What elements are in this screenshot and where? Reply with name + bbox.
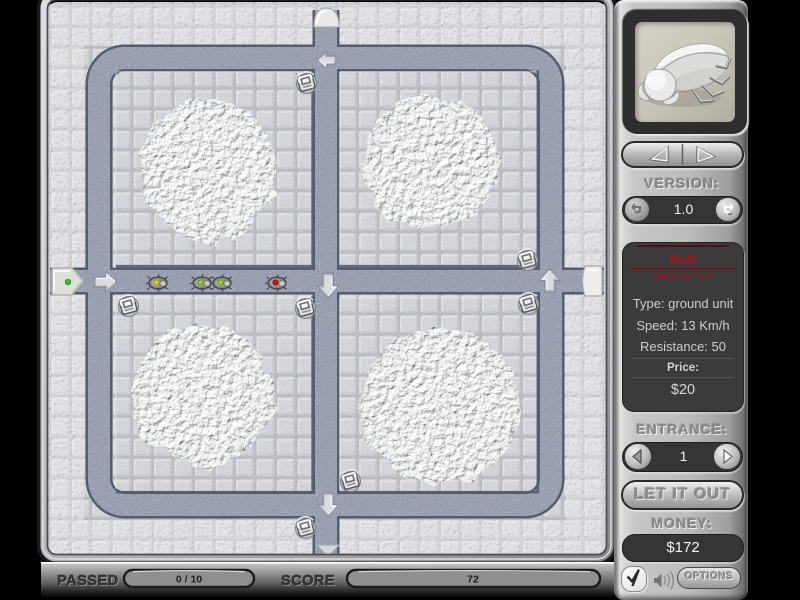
svg-text:0 / 10: 0 / 10	[176, 574, 202, 586]
svg-text:72: 72	[467, 574, 479, 586]
svg-text:PASSED: PASSED	[57, 573, 119, 589]
svg-text:SCORE: SCORE	[281, 573, 335, 589]
